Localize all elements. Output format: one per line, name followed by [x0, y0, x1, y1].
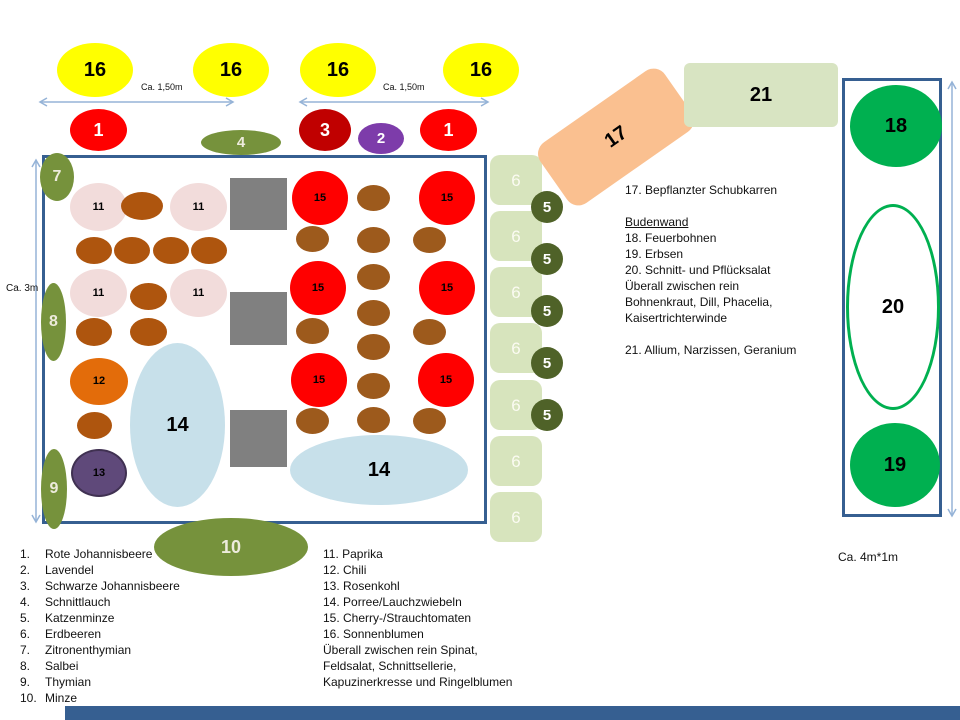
gray-square: [230, 178, 287, 230]
chili-12: 12: [70, 358, 128, 405]
brown-plant: [130, 283, 167, 310]
erdbeeren-6-box-6: 6: [490, 436, 542, 486]
legend-item: 1.Rote Johannisbeere: [20, 546, 180, 562]
schwarze-johannisbeere-3: 3: [299, 109, 351, 151]
tomate-15-4: 15: [419, 261, 475, 315]
info-line: 20. Schnitt- und Pflücksalat: [625, 262, 796, 278]
thymian-9: 9: [41, 449, 67, 529]
sonnenblume-16-1: 16: [57, 43, 133, 97]
brown-plant: [357, 185, 390, 211]
salbei-8: 8: [41, 283, 66, 361]
lavendel-2: 2: [358, 123, 404, 154]
brown-plant: [296, 408, 329, 434]
legend-item: 2.Lavendel: [20, 562, 180, 578]
paprika-11-1: 11: [70, 183, 127, 231]
measure-arrow-top-left-label: Ca. 1,50m: [141, 82, 183, 92]
brown-plant: [357, 227, 390, 253]
sonnenblume-16-4: 16: [443, 43, 519, 97]
legend-item: 6.Erdbeeren: [20, 626, 180, 642]
legend-item: 8.Salbei: [20, 658, 180, 674]
info-line: 18. Feuerbohnen: [625, 230, 796, 246]
legend-item: 16. Sonnenblumen: [323, 626, 512, 642]
measure-arrow-right-label: Ca. 4m*1m: [838, 550, 898, 564]
zitronenthymian-7: 7: [40, 153, 74, 201]
legend-item: 5.Katzenminze: [20, 610, 180, 626]
tomate-15-2: 15: [419, 171, 475, 225]
brown-plant: [296, 318, 329, 344]
info-text-block: 17. Bepflanzter Schubkarren Budenwand18.…: [625, 182, 796, 358]
legend-item: 12. Chili: [323, 562, 512, 578]
brown-plant: [413, 227, 446, 253]
porree-14-rechts: 14: [290, 435, 468, 505]
brown-plant: [191, 237, 227, 264]
paprika-11-2: 11: [170, 183, 227, 231]
legend-item: 3.Schwarze Johannisbeere: [20, 578, 180, 594]
legend-item: 15. Cherry-/Strauchtomaten: [323, 610, 512, 626]
tomate-15-6: 15: [418, 353, 474, 407]
legend-item: 4.Schnittlauch: [20, 594, 180, 610]
legend-left-column: 1.Rote Johannisbeere2.Lavendel3.Schwarze…: [20, 546, 180, 706]
legend-right-column: 11. Paprika12. Chili13. Rosenkohl14. Por…: [323, 546, 512, 690]
gray-square: [230, 410, 287, 467]
paprika-11-3: 11: [70, 269, 127, 317]
brown-plant: [357, 334, 390, 360]
pfluecksalat-20: 20: [846, 204, 940, 410]
katzenminze-5-5: 5: [531, 399, 563, 431]
legend-item: 7.Zitronenthymian: [20, 642, 180, 658]
legend-item: 13. Rosenkohl: [323, 578, 512, 594]
feuerbohnen-18: 18: [850, 85, 942, 167]
legend-item: 14. Porree/Lauchzwiebeln: [323, 594, 512, 610]
katzenminze-5-1: 5: [531, 191, 563, 223]
beet-21: 21: [684, 63, 838, 127]
brown-plant: [296, 226, 329, 252]
brown-plant: [121, 192, 163, 220]
schnittlauch-4: 4: [201, 130, 281, 155]
info-line: 17. Bepflanzter Schubkarren: [625, 182, 796, 198]
info-line: Überall zwischen rein: [625, 278, 796, 294]
info-line: Kaisertrichterwinde: [625, 310, 796, 326]
erdbeeren-6-box-7: 6: [490, 492, 542, 542]
katzenminze-5-2: 5: [531, 243, 563, 275]
tomate-15-3: 15: [290, 261, 346, 315]
legend-item: 11. Paprika: [323, 546, 512, 562]
info-line: [625, 326, 796, 342]
tomate-15-5: 15: [291, 353, 347, 407]
legend-item: 9.Thymian: [20, 674, 180, 690]
paprika-11-4: 11: [170, 269, 227, 317]
brown-plant: [413, 319, 446, 345]
info-line: 19. Erbsen: [625, 246, 796, 262]
brown-plant: [357, 407, 390, 433]
info-line: [625, 198, 796, 214]
info-line: 21. Allium, Narzissen, Geranium: [625, 342, 796, 358]
johannisbeere-1-links: 1: [70, 109, 127, 151]
brown-plant: [76, 237, 112, 264]
johannisbeere-1-rechts: 1: [420, 109, 477, 151]
brown-plant: [413, 408, 446, 434]
measure-arrow-top-right-label: Ca. 1,50m: [383, 82, 425, 92]
brown-plant: [357, 373, 390, 399]
bottom-accent-bar: [65, 706, 960, 720]
measure-arrow-left-label: Ca. 3m: [6, 283, 38, 294]
info-line: Bohnenkraut, Dill, Phacelia,: [625, 294, 796, 310]
gray-square: [230, 292, 287, 345]
garden-plan-slide: 6666666172155555161616161432111111111121…: [0, 0, 960, 720]
brown-plant: [130, 318, 167, 346]
katzenminze-5-3: 5: [531, 295, 563, 327]
legend-item: Feldsalat, Schnittsellerie,: [323, 658, 512, 674]
brown-plant: [357, 264, 390, 290]
info-line: Budenwand: [625, 214, 796, 230]
rosenkohl-13: 13: [71, 449, 127, 497]
porree-14-links: 14: [130, 343, 225, 507]
legend-item: Überall zwischen rein Spinat,: [323, 642, 512, 658]
tomate-15-1: 15: [292, 171, 348, 225]
brown-plant: [77, 412, 112, 439]
sonnenblume-16-3: 16: [300, 43, 376, 97]
brown-plant: [153, 237, 189, 264]
legend-item: 10.Minze: [20, 690, 180, 706]
sonnenblume-16-2: 16: [193, 43, 269, 97]
brown-plant: [357, 300, 390, 326]
katzenminze-5-4: 5: [531, 347, 563, 379]
legend-item: Kapuzinerkresse und Ringelblumen: [323, 674, 512, 690]
brown-plant: [76, 318, 112, 346]
brown-plant: [114, 237, 150, 264]
erbsen-19: 19: [850, 423, 940, 507]
